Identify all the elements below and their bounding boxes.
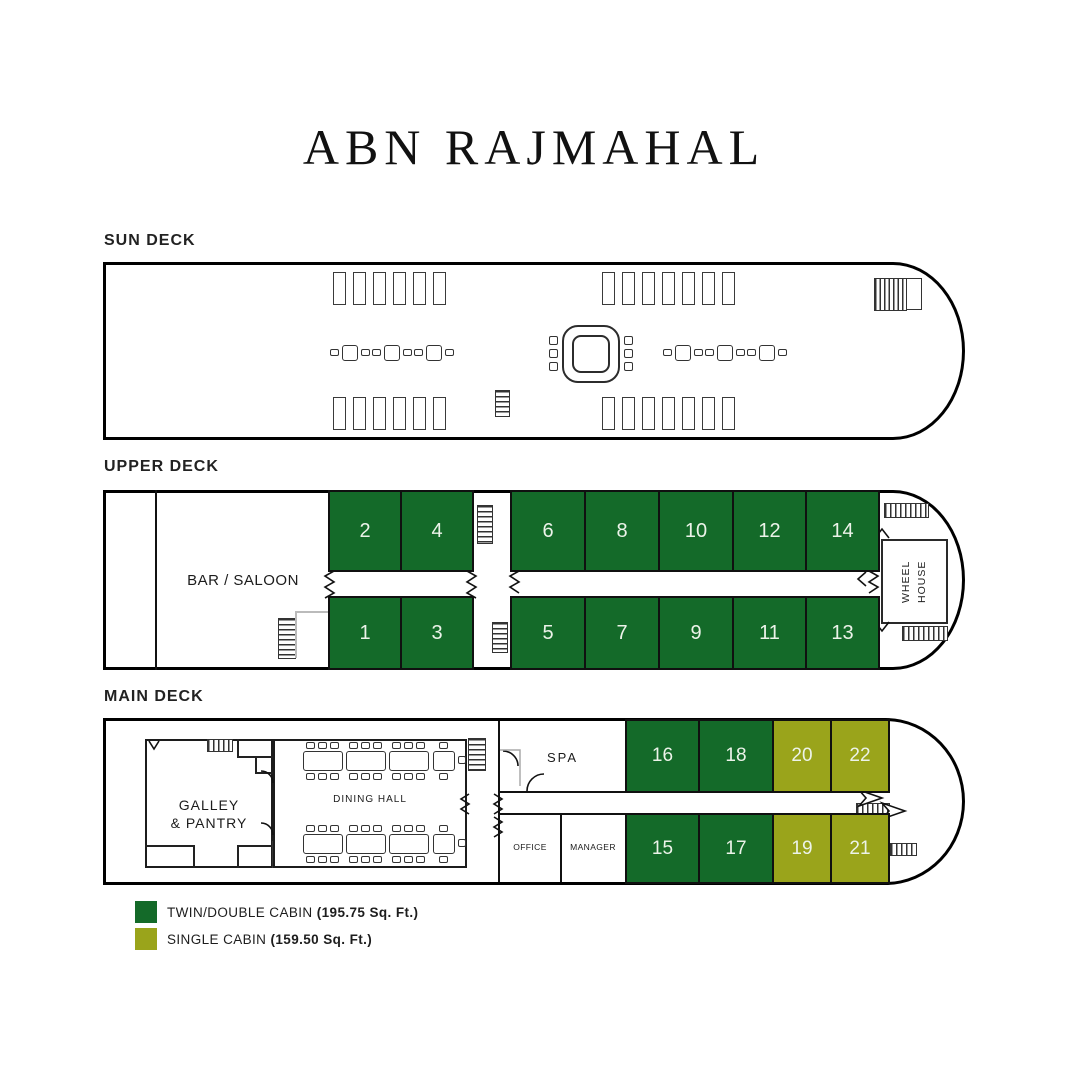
dining-chair bbox=[439, 742, 448, 749]
dining-chair bbox=[361, 742, 370, 749]
stairs-housing bbox=[874, 278, 922, 310]
deck-chair bbox=[361, 349, 370, 356]
stool bbox=[549, 336, 558, 345]
sun-lounger bbox=[682, 272, 695, 305]
sun-lounger bbox=[373, 272, 386, 305]
deck-table bbox=[342, 345, 358, 361]
cabin-13: 13 bbox=[805, 596, 880, 670]
dining-chair bbox=[392, 742, 401, 749]
dining-chair bbox=[330, 825, 339, 832]
cabin-2: 2 bbox=[328, 490, 402, 572]
galley-partition bbox=[145, 845, 195, 868]
stairs bbox=[890, 843, 917, 856]
deck-chair bbox=[372, 349, 381, 356]
dining-chair bbox=[404, 742, 413, 749]
deck-chair bbox=[330, 349, 339, 356]
dining-table bbox=[303, 834, 343, 854]
galley-partition bbox=[237, 845, 273, 868]
sun-lounger bbox=[333, 397, 346, 430]
dining-table bbox=[303, 751, 343, 771]
sun-lounger bbox=[662, 272, 675, 305]
dining-chair bbox=[306, 773, 315, 780]
main-deck-label: MAIN DECK bbox=[104, 688, 204, 706]
section-wall bbox=[498, 721, 500, 882]
deck-chair bbox=[663, 349, 672, 356]
sun-lounger bbox=[333, 272, 346, 305]
dining-chair bbox=[416, 825, 425, 832]
sun-lounger bbox=[413, 272, 426, 305]
sun-lounger bbox=[622, 272, 635, 305]
cabin-21: 21 bbox=[830, 813, 890, 884]
sun-lounger bbox=[373, 397, 386, 430]
dining-chair bbox=[306, 742, 315, 749]
lounge-table-inner bbox=[572, 335, 610, 373]
dining-chair bbox=[330, 742, 339, 749]
sun-lounger bbox=[433, 397, 446, 430]
cabin-16: 16 bbox=[625, 719, 700, 793]
deck-chair bbox=[403, 349, 412, 356]
dining-table bbox=[389, 834, 429, 854]
cabin-19: 19 bbox=[772, 813, 832, 884]
dining-chair bbox=[458, 756, 466, 764]
sun-deck-lounge-table bbox=[562, 325, 620, 383]
spa-label: SPA bbox=[500, 750, 625, 765]
deck-table bbox=[384, 345, 400, 361]
sun-deck-label: SUN DECK bbox=[104, 232, 196, 250]
deck-chair bbox=[705, 349, 714, 356]
dining-chair bbox=[318, 773, 327, 780]
dining-chair bbox=[416, 742, 425, 749]
manager-label: MANAGER bbox=[562, 842, 624, 852]
office-wall bbox=[500, 813, 625, 815]
deck-chair bbox=[414, 349, 423, 356]
dining-chair bbox=[349, 856, 358, 863]
sun-lounger bbox=[642, 397, 655, 430]
sun-lounger bbox=[622, 397, 635, 430]
sun-lounger bbox=[722, 397, 735, 430]
dining-hall-label: DINING HALL bbox=[275, 794, 465, 805]
legend-item-twin-double: TWIN/DOUBLE CABIN (195.75 Sq. Ft.) bbox=[135, 901, 418, 923]
dining-table bbox=[346, 834, 386, 854]
dining-chair bbox=[330, 773, 339, 780]
dining-chair bbox=[404, 856, 413, 863]
cabin-20: 20 bbox=[772, 719, 832, 793]
wheel-house: WHEEL HOUSE bbox=[881, 539, 948, 624]
dining-chair bbox=[318, 742, 327, 749]
deck-chair bbox=[778, 349, 787, 356]
sun-lounger bbox=[682, 397, 695, 430]
sun-lounger bbox=[602, 397, 615, 430]
stool bbox=[624, 336, 633, 345]
deck-table bbox=[675, 345, 691, 361]
deck-table bbox=[759, 345, 775, 361]
deck-chair bbox=[747, 349, 756, 356]
sun-lounger bbox=[353, 272, 366, 305]
dining-chair bbox=[330, 856, 339, 863]
sun-lounger bbox=[642, 272, 655, 305]
bar-saloon-label: BAR / SALOON bbox=[157, 572, 329, 589]
sun-lounger bbox=[393, 272, 406, 305]
dining-chair bbox=[416, 773, 425, 780]
stool bbox=[549, 349, 558, 358]
legend: TWIN/DOUBLE CABIN (195.75 Sq. Ft.) SINGL… bbox=[135, 901, 418, 955]
cabin-6: 6 bbox=[510, 490, 586, 572]
dining-chair bbox=[439, 825, 448, 832]
dining-chair bbox=[318, 825, 327, 832]
sun-lounger bbox=[602, 272, 615, 305]
cabin-3: 3 bbox=[400, 596, 474, 670]
stairs bbox=[492, 622, 508, 653]
dining-chair bbox=[318, 856, 327, 863]
dining-chair bbox=[439, 856, 448, 863]
stairs bbox=[468, 738, 486, 771]
dining-chair bbox=[361, 825, 370, 832]
sun-lounger bbox=[393, 397, 406, 430]
dining-chair bbox=[392, 773, 401, 780]
dining-table bbox=[433, 834, 455, 854]
dining-chair bbox=[349, 742, 358, 749]
stairs bbox=[884, 503, 929, 518]
dining-chair bbox=[404, 773, 413, 780]
cabin-7: 7 bbox=[584, 596, 660, 670]
cabin-9: 9 bbox=[658, 596, 734, 670]
dining-chair bbox=[392, 856, 401, 863]
dining-chair bbox=[361, 856, 370, 863]
dining-table bbox=[433, 751, 455, 771]
dining-chair bbox=[392, 825, 401, 832]
legend-item-single: SINGLE CABIN (159.50 Sq. Ft.) bbox=[135, 928, 418, 950]
stairs bbox=[495, 390, 510, 417]
sun-lounger bbox=[722, 272, 735, 305]
deck-plan-page: ABN RAJMAHAL SUN DECK UPPER DECK BAR / S… bbox=[0, 0, 1068, 1072]
sun-deck-plan bbox=[103, 262, 965, 440]
cabin-14: 14 bbox=[805, 490, 880, 572]
dining-chair bbox=[306, 856, 315, 863]
dining-chair bbox=[373, 742, 382, 749]
spa-wall bbox=[500, 791, 625, 793]
cabin-17: 17 bbox=[698, 813, 774, 884]
wheel-house-label: WHEEL HOUSE bbox=[899, 541, 931, 622]
deck-chair bbox=[736, 349, 745, 356]
stool bbox=[549, 362, 558, 371]
galley-partition bbox=[237, 739, 273, 758]
stairs bbox=[477, 505, 493, 544]
sun-lounger bbox=[353, 397, 366, 430]
dining-chair bbox=[373, 856, 382, 863]
stairs bbox=[207, 739, 233, 752]
dining-chair bbox=[404, 825, 413, 832]
dining-chair bbox=[439, 773, 448, 780]
deck-table bbox=[717, 345, 733, 361]
upper-deck-plan: BAR / SALOON WHEEL HOUSE 246810121413579… bbox=[103, 490, 965, 670]
deck-chair bbox=[694, 349, 703, 356]
dining-chair bbox=[349, 825, 358, 832]
cabin-11: 11 bbox=[732, 596, 807, 670]
cabin-4: 4 bbox=[400, 490, 474, 572]
office-label: OFFICE bbox=[500, 842, 560, 852]
dining-chair bbox=[458, 839, 466, 847]
cabin-10: 10 bbox=[658, 490, 734, 572]
sun-lounger bbox=[702, 397, 715, 430]
cabin-1: 1 bbox=[328, 596, 402, 670]
galley-partition bbox=[255, 758, 273, 774]
sun-lounger bbox=[413, 397, 426, 430]
single-cabin-legend-text: SINGLE CABIN (159.50 Sq. Ft.) bbox=[167, 932, 372, 947]
dining-chair bbox=[349, 773, 358, 780]
sun-lounger bbox=[662, 397, 675, 430]
dining-chair bbox=[361, 773, 370, 780]
stairs bbox=[902, 626, 948, 641]
sun-lounger bbox=[702, 272, 715, 305]
dining-chair bbox=[306, 825, 315, 832]
dining-chair bbox=[373, 773, 382, 780]
main-deck-plan: GALLEY & PANTRY DINING HALL SPA OFFICE M… bbox=[103, 718, 965, 885]
twin-double-cabin-swatch bbox=[135, 901, 157, 923]
stool bbox=[624, 349, 633, 358]
dining-table bbox=[346, 751, 386, 771]
sun-deck-hull-outline bbox=[103, 262, 965, 440]
sun-lounger bbox=[433, 272, 446, 305]
galley-pantry-label: GALLEY & PANTRY bbox=[147, 796, 271, 832]
ship-title: ABN RAJMAHAL bbox=[0, 118, 1068, 176]
upper-deck-label: UPPER DECK bbox=[104, 458, 219, 476]
cabin-5: 5 bbox=[510, 596, 586, 670]
deck-chair bbox=[445, 349, 454, 356]
dining-table bbox=[389, 751, 429, 771]
single-cabin-swatch bbox=[135, 928, 157, 950]
stairs bbox=[874, 278, 907, 311]
cabin-15: 15 bbox=[625, 813, 700, 884]
cabin-18: 18 bbox=[698, 719, 774, 793]
twin-double-cabin-legend-text: TWIN/DOUBLE CABIN (195.75 Sq. Ft.) bbox=[167, 905, 418, 920]
stairs bbox=[278, 618, 296, 659]
dining-chair bbox=[416, 856, 425, 863]
dining-chair bbox=[373, 825, 382, 832]
cabin-12: 12 bbox=[732, 490, 807, 572]
cabin-8: 8 bbox=[584, 490, 660, 572]
cabin-22: 22 bbox=[830, 719, 890, 793]
stool bbox=[624, 362, 633, 371]
deck-table bbox=[426, 345, 442, 361]
